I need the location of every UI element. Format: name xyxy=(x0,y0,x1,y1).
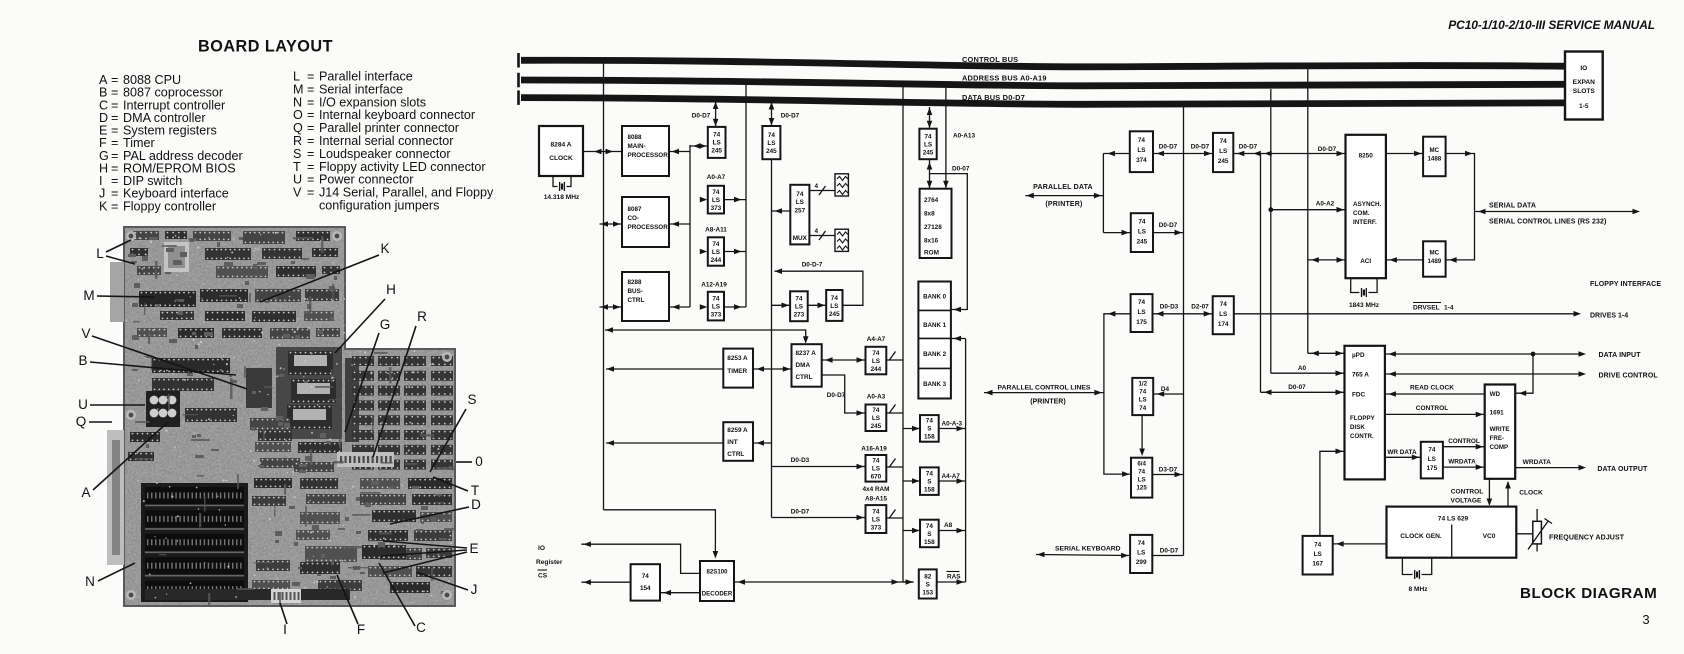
svg-text:125: 125 xyxy=(1136,485,1147,492)
svg-text:T: T xyxy=(471,483,479,498)
svg-text:8288: 8288 xyxy=(628,279,643,286)
svg-text:1843 MHz: 1843 MHz xyxy=(1349,302,1380,309)
svg-text:8237 A: 8237 A xyxy=(796,350,817,357)
svg-text:74: 74 xyxy=(768,132,776,139)
svg-text:FREQUENCY ADJUST: FREQUENCY ADJUST xyxy=(1549,535,1625,542)
svg-text:74: 74 xyxy=(926,470,934,477)
svg-text:175: 175 xyxy=(1427,465,1438,472)
svg-text:L: L xyxy=(293,70,300,84)
svg-text:D0-D3: D0-D3 xyxy=(791,457,810,464)
svg-text:74: 74 xyxy=(1428,447,1436,454)
svg-text:T: T xyxy=(293,160,301,174)
svg-text:14.318 MHz: 14.318 MHz xyxy=(544,194,580,201)
svg-text:LS: LS xyxy=(830,303,839,310)
svg-text:74: 74 xyxy=(712,241,720,248)
svg-text:8253 A: 8253 A xyxy=(727,355,748,362)
svg-text:RAS: RAS xyxy=(947,574,961,581)
svg-text:74: 74 xyxy=(1138,299,1146,306)
svg-text:DATA BUS D0-D7: DATA BUS D0-D7 xyxy=(962,93,1025,102)
svg-text:LS: LS xyxy=(872,358,881,365)
svg-text:V: V xyxy=(293,186,302,200)
svg-text:A8-A15: A8-A15 xyxy=(865,496,887,503)
svg-text:A4-A7: A4-A7 xyxy=(867,336,886,343)
svg-text:C: C xyxy=(416,620,426,635)
svg-text:LS: LS xyxy=(796,199,805,206)
svg-text:R: R xyxy=(293,134,302,148)
svg-text:CLOCK: CLOCK xyxy=(549,155,573,162)
svg-text:VOLTAGE: VOLTAGE xyxy=(1451,497,1482,504)
svg-text:LS: LS xyxy=(712,249,721,256)
svg-text:LS: LS xyxy=(1137,309,1146,316)
svg-text:74: 74 xyxy=(712,189,720,196)
svg-text:74: 74 xyxy=(1220,301,1228,308)
svg-text:E: E xyxy=(469,541,478,556)
svg-text:299: 299 xyxy=(1136,559,1147,566)
svg-text:WRITE: WRITE xyxy=(1490,426,1510,433)
svg-text:IO: IO xyxy=(1580,65,1587,72)
svg-text:SERIAL KEYBOARD: SERIAL KEYBOARD xyxy=(1055,546,1121,553)
svg-text:8087: 8087 xyxy=(628,206,643,213)
svg-text:LS: LS xyxy=(1137,550,1146,557)
svg-text:245: 245 xyxy=(766,148,777,155)
svg-text:BANK 0: BANK 0 xyxy=(923,294,947,301)
svg-text:WR DATA: WR DATA xyxy=(1387,449,1417,456)
svg-text:D0-D7: D0-D7 xyxy=(1159,143,1178,150)
svg-text:A16-A19: A16-A19 xyxy=(861,446,887,453)
svg-text:U: U xyxy=(293,173,302,187)
svg-text:ADDRESS BUS A0-A19: ADDRESS BUS A0-A19 xyxy=(962,73,1047,82)
svg-text:74: 74 xyxy=(713,132,721,139)
svg-text:PROCESSOR: PROCESSOR xyxy=(628,152,669,159)
svg-text:D0-07: D0-07 xyxy=(952,166,970,173)
svg-text:=: = xyxy=(307,108,314,122)
svg-text:Power connector: Power connector xyxy=(319,173,414,187)
svg-text:BANK 3: BANK 3 xyxy=(923,381,947,388)
svg-text:A4-A7: A4-A7 xyxy=(942,473,961,480)
svg-text:=: = xyxy=(307,160,314,174)
svg-text:153: 153 xyxy=(922,589,933,596)
svg-text:WRDATA: WRDATA xyxy=(1523,459,1552,466)
svg-text:FDC: FDC xyxy=(1352,392,1366,399)
svg-text:DMA: DMA xyxy=(796,362,811,369)
svg-text:8259 A: 8259 A xyxy=(727,427,748,434)
svg-text:K: K xyxy=(380,241,389,256)
svg-text:244: 244 xyxy=(871,366,882,373)
svg-text:3: 3 xyxy=(1642,612,1649,627)
svg-text:FLOPPY: FLOPPY xyxy=(1350,415,1376,422)
svg-text:µPD: µPD xyxy=(1352,352,1365,359)
svg-text:D3-D7: D3-D7 xyxy=(1159,466,1178,473)
svg-text:D0-D7: D0-D7 xyxy=(1239,143,1258,150)
svg-text:27128: 27128 xyxy=(924,224,942,231)
svg-text:configuration jumpers: configuration jumpers xyxy=(319,199,439,213)
svg-text:COMP: COMP xyxy=(1490,444,1509,451)
svg-text:LS: LS xyxy=(1138,477,1146,484)
svg-text:=: = xyxy=(307,121,314,135)
svg-text:V: V xyxy=(81,326,90,341)
svg-text:Internal keyboard connector: Internal keyboard connector xyxy=(319,108,475,122)
svg-text:Q: Q xyxy=(293,121,303,135)
svg-text:CONTROL BUS: CONTROL BUS xyxy=(962,55,1018,64)
svg-text:FRE-: FRE- xyxy=(1490,435,1504,442)
svg-text:N: N xyxy=(293,95,302,109)
svg-text:74: 74 xyxy=(712,295,720,302)
svg-text:4: 4 xyxy=(815,228,819,235)
svg-text:74: 74 xyxy=(796,191,804,198)
svg-text:B: B xyxy=(78,353,87,368)
svg-text:74: 74 xyxy=(872,350,880,357)
svg-text:BUS-: BUS- xyxy=(628,288,643,295)
svg-text:1489: 1489 xyxy=(1427,258,1441,265)
svg-text:8x8: 8x8 xyxy=(924,211,935,218)
svg-text:4: 4 xyxy=(815,183,819,190)
svg-text:1691: 1691 xyxy=(1490,410,1505,417)
svg-text:CLOCK: CLOCK xyxy=(1519,490,1543,497)
svg-text:H: H xyxy=(386,282,396,297)
svg-text:INTERF.: INTERF. xyxy=(1353,219,1377,226)
svg-text:BANK 2: BANK 2 xyxy=(923,351,947,358)
svg-text:LS: LS xyxy=(712,303,721,310)
svg-text:LS: LS xyxy=(872,415,881,422)
svg-text:CLOCK GEN.: CLOCK GEN. xyxy=(1400,533,1442,540)
svg-text:D: D xyxy=(471,497,481,512)
svg-text:CONTROL: CONTROL xyxy=(1451,488,1484,495)
svg-text:82: 82 xyxy=(924,573,932,580)
svg-text:MUX: MUX xyxy=(793,235,808,242)
svg-text:J: J xyxy=(471,582,478,597)
svg-text:82S100: 82S100 xyxy=(706,569,728,576)
svg-text:154: 154 xyxy=(640,585,651,592)
svg-text:G: G xyxy=(380,317,391,332)
svg-text:D4: D4 xyxy=(1161,386,1170,393)
svg-text:LS: LS xyxy=(1219,148,1228,155)
svg-text:CTRL: CTRL xyxy=(727,451,744,458)
svg-text:D0-D7: D0-D7 xyxy=(827,392,846,399)
svg-text:373: 373 xyxy=(711,205,722,212)
svg-text:Floppy controller: Floppy controller xyxy=(123,199,216,213)
svg-text:MC: MC xyxy=(1430,250,1440,257)
svg-text:FLOPPY INTERFACE: FLOPPY INTERFACE xyxy=(1590,281,1661,288)
svg-text:=: = xyxy=(111,199,118,213)
svg-text:CONTROL: CONTROL xyxy=(1416,405,1449,412)
svg-text:765 A: 765 A xyxy=(1352,372,1369,379)
svg-text:PC10-1/10-2/10-III SERVICE MAN: PC10-1/10-2/10-III SERVICE MANUAL xyxy=(1448,18,1655,32)
svg-text:(PRINTER): (PRINTER) xyxy=(1030,398,1065,405)
svg-text:158: 158 xyxy=(924,539,935,546)
svg-text:R: R xyxy=(417,309,427,324)
svg-text:S: S xyxy=(927,426,932,433)
svg-text:VC0: VC0 xyxy=(1483,533,1496,540)
svg-text:M: M xyxy=(293,82,304,96)
svg-text:DATA OUTPUT: DATA OUTPUT xyxy=(1597,466,1648,473)
svg-text:167: 167 xyxy=(1312,561,1323,568)
svg-text:LS: LS xyxy=(924,141,933,148)
svg-text:D0-D7: D0-D7 xyxy=(1318,146,1337,153)
svg-text:COM.: COM. xyxy=(1353,210,1370,217)
svg-text:D0-D7: D0-D7 xyxy=(781,113,800,120)
svg-text:ROM: ROM xyxy=(924,250,939,257)
svg-text:LS: LS xyxy=(1314,551,1323,558)
svg-text:74: 74 xyxy=(872,458,880,465)
svg-text:LS: LS xyxy=(872,516,881,523)
svg-text:LS: LS xyxy=(795,304,804,311)
svg-text:PARALLEL CONTROL LINES: PARALLEL CONTROL LINES xyxy=(998,384,1091,391)
svg-text:TIMER: TIMER xyxy=(727,368,747,375)
svg-text:S: S xyxy=(927,531,932,538)
svg-text:74: 74 xyxy=(1220,138,1228,145)
svg-text:CO-: CO- xyxy=(628,215,640,222)
svg-text:373: 373 xyxy=(871,524,882,531)
svg-text:=: = xyxy=(307,173,314,187)
svg-text:LS: LS xyxy=(872,466,881,473)
svg-text:=: = xyxy=(307,82,314,96)
svg-text:8x16: 8x16 xyxy=(924,238,939,245)
svg-text:A0-A2: A0-A2 xyxy=(1316,200,1335,207)
svg-text:D2-07: D2-07 xyxy=(1191,304,1209,311)
svg-text:74: 74 xyxy=(1138,540,1146,547)
svg-text:1488: 1488 xyxy=(1427,156,1441,163)
svg-text:DATA INPUT: DATA INPUT xyxy=(1599,352,1642,359)
svg-text:257: 257 xyxy=(795,207,806,214)
svg-text:74: 74 xyxy=(642,573,650,580)
svg-text:INT: INT xyxy=(727,439,737,446)
svg-text:ACI: ACI xyxy=(1360,258,1371,265)
svg-text:670: 670 xyxy=(871,474,882,481)
svg-text:1-5: 1-5 xyxy=(1579,103,1589,110)
svg-text:LS: LS xyxy=(767,140,776,147)
svg-text:CTRL: CTRL xyxy=(796,374,813,381)
svg-text:L: L xyxy=(96,246,104,261)
svg-text:D0-D7: D0-D7 xyxy=(1159,222,1178,229)
svg-text:4x4 RAM: 4x4 RAM xyxy=(863,486,890,493)
svg-text:Internal serial connector: Internal serial connector xyxy=(319,134,453,148)
svg-text:158: 158 xyxy=(924,486,935,493)
svg-text:74: 74 xyxy=(795,296,803,303)
svg-text:Parallel printer connector: Parallel printer connector xyxy=(319,121,459,135)
svg-text:Register: Register xyxy=(536,559,563,566)
svg-text:74: 74 xyxy=(872,407,880,414)
svg-text:A12-A19: A12-A19 xyxy=(701,282,727,289)
svg-text:LS: LS xyxy=(1138,229,1147,236)
svg-text:1/2: 1/2 xyxy=(1138,381,1147,388)
svg-text:D0-D7: D0-D7 xyxy=(1191,143,1210,150)
svg-text:I/O expansion slots: I/O expansion slots xyxy=(319,95,426,109)
svg-text:CONTR.: CONTR. xyxy=(1350,433,1374,440)
svg-text:CS: CS xyxy=(538,573,548,580)
svg-text:245: 245 xyxy=(1218,158,1229,165)
svg-text:74: 74 xyxy=(1314,542,1322,549)
svg-text:DECODER: DECODER xyxy=(702,591,733,598)
svg-text:74: 74 xyxy=(1139,389,1146,396)
svg-text:BANK 1: BANK 1 xyxy=(923,322,947,329)
svg-text:IO: IO xyxy=(538,545,545,552)
svg-text:74: 74 xyxy=(926,523,934,530)
svg-text:=: = xyxy=(307,134,314,148)
svg-text:CTRL: CTRL xyxy=(628,297,645,304)
svg-text:CONTROL: CONTROL xyxy=(1448,438,1480,445)
svg-text:8 MHz: 8 MHz xyxy=(1408,586,1428,593)
svg-text:74: 74 xyxy=(1139,405,1146,412)
svg-text:D0-D7: D0-D7 xyxy=(692,113,711,120)
svg-text:74: 74 xyxy=(831,295,839,302)
svg-text:74: 74 xyxy=(1138,219,1146,226)
svg-text:(PRINTER): (PRINTER) xyxy=(1045,201,1082,208)
svg-text:MC: MC xyxy=(1430,147,1440,154)
svg-text:8284 A: 8284 A xyxy=(550,142,571,149)
svg-text:158: 158 xyxy=(924,434,935,441)
svg-text:O: O xyxy=(293,108,303,122)
svg-text:U: U xyxy=(78,397,88,412)
svg-text:A8: A8 xyxy=(944,522,953,529)
svg-text:A0-A-3: A0-A-3 xyxy=(942,421,963,428)
svg-text:PROCESSOR: PROCESSOR xyxy=(628,224,669,231)
svg-text:374: 374 xyxy=(1136,157,1147,164)
svg-text:K: K xyxy=(99,199,108,213)
svg-text:=: = xyxy=(307,147,314,161)
svg-text:DRIVES 1-4: DRIVES 1-4 xyxy=(1590,312,1628,319)
svg-text:A: A xyxy=(81,485,90,500)
svg-text:M: M xyxy=(83,288,94,303)
svg-text:PARALLEL DATA: PARALLEL DATA xyxy=(1033,184,1093,191)
svg-text:245: 245 xyxy=(871,423,882,430)
svg-text:S: S xyxy=(927,478,932,485)
svg-text:=: = xyxy=(307,95,314,109)
svg-text:S: S xyxy=(293,147,301,161)
svg-text:LS: LS xyxy=(712,197,721,204)
svg-text:74: 74 xyxy=(924,133,932,140)
svg-text:373: 373 xyxy=(711,311,722,318)
svg-text:Serial interface: Serial interface xyxy=(319,82,403,96)
svg-text:273: 273 xyxy=(794,312,805,319)
svg-text:245: 245 xyxy=(923,149,934,156)
svg-text:245: 245 xyxy=(711,148,722,155)
svg-text:2764: 2764 xyxy=(924,197,939,204)
svg-text:244: 244 xyxy=(711,257,722,264)
svg-text:Floppy activity LED connector: Floppy activity LED connector xyxy=(319,160,486,174)
svg-text:READ CLOCK: READ CLOCK xyxy=(1410,385,1454,392)
svg-text:175: 175 xyxy=(1136,319,1147,326)
svg-text:LS: LS xyxy=(713,140,722,147)
svg-text:A0-A13: A0-A13 xyxy=(953,133,975,140)
svg-text:BLOCK DIAGRAM: BLOCK DIAGRAM xyxy=(1520,585,1657,602)
svg-text:D0-D7: D0-D7 xyxy=(791,509,810,516)
svg-text:Loudspeaker connector: Loudspeaker connector xyxy=(319,147,451,161)
svg-text:I: I xyxy=(283,622,287,637)
svg-text:F: F xyxy=(357,622,365,637)
svg-text:245: 245 xyxy=(1137,239,1148,246)
svg-text:Parallel interface: Parallel interface xyxy=(319,70,413,84)
svg-text:74: 74 xyxy=(926,418,934,425)
svg-text:SERIAL DATA: SERIAL DATA xyxy=(1489,202,1536,209)
svg-text:J14 Serial, Parallel, and Flop: J14 Serial, Parallel, and Floppy xyxy=(319,186,494,200)
svg-text:1-4: 1-4 xyxy=(1444,305,1454,312)
svg-text:S: S xyxy=(467,392,476,407)
svg-text:ASYNCH.: ASYNCH. xyxy=(1353,201,1382,208)
svg-text:LS: LS xyxy=(1139,397,1147,404)
svg-text:A8-A11: A8-A11 xyxy=(705,227,727,234)
svg-text:Q: Q xyxy=(76,414,87,429)
svg-text:A0-A3: A0-A3 xyxy=(867,394,886,401)
svg-text:DRIVE CONTROL: DRIVE CONTROL xyxy=(1599,372,1659,379)
svg-text:LS: LS xyxy=(1428,456,1437,463)
svg-text:D0-D-7: D0-D-7 xyxy=(802,262,823,269)
svg-text:74: 74 xyxy=(872,508,880,515)
svg-text:SERIAL CONTROL LINES (RS 232): SERIAL CONTROL LINES (RS 232) xyxy=(1489,219,1606,226)
svg-text:A0: A0 xyxy=(1298,365,1307,372)
svg-text:D0-D7: D0-D7 xyxy=(1160,548,1179,555)
svg-text:SLOTS: SLOTS xyxy=(1573,88,1596,95)
svg-text:DISK: DISK xyxy=(1350,424,1365,431)
svg-text:WRDATA: WRDATA xyxy=(1448,458,1476,465)
svg-text:BOARD LAYOUT: BOARD LAYOUT xyxy=(198,38,333,56)
svg-text:D0-D3: D0-D3 xyxy=(1160,304,1179,311)
svg-text:A0-A7: A0-A7 xyxy=(707,174,726,181)
svg-text:DRVSEL: DRVSEL xyxy=(1413,305,1440,312)
svg-text:8250: 8250 xyxy=(1359,153,1374,160)
svg-text:6/4: 6/4 xyxy=(1137,460,1146,467)
svg-text:LS: LS xyxy=(1137,147,1146,154)
svg-text:MAIN-: MAIN- xyxy=(628,143,646,150)
svg-text:245: 245 xyxy=(829,311,840,318)
svg-text:D0-07: D0-07 xyxy=(1288,384,1306,391)
svg-text:174: 174 xyxy=(1218,321,1229,328)
svg-text:=: = xyxy=(307,186,314,200)
svg-text:LS: LS xyxy=(1219,311,1228,318)
svg-text:74: 74 xyxy=(1138,468,1145,475)
svg-text:N: N xyxy=(85,574,95,589)
svg-text:74: 74 xyxy=(1138,137,1146,144)
svg-text:74 LS 629: 74 LS 629 xyxy=(1438,515,1469,522)
svg-text:0: 0 xyxy=(475,454,483,469)
svg-text:EXPAN: EXPAN xyxy=(1573,79,1595,86)
svg-text:=: = xyxy=(307,70,314,84)
svg-text:S: S xyxy=(926,581,931,588)
svg-text:WD: WD xyxy=(1490,391,1501,398)
svg-text:8088: 8088 xyxy=(628,134,643,141)
